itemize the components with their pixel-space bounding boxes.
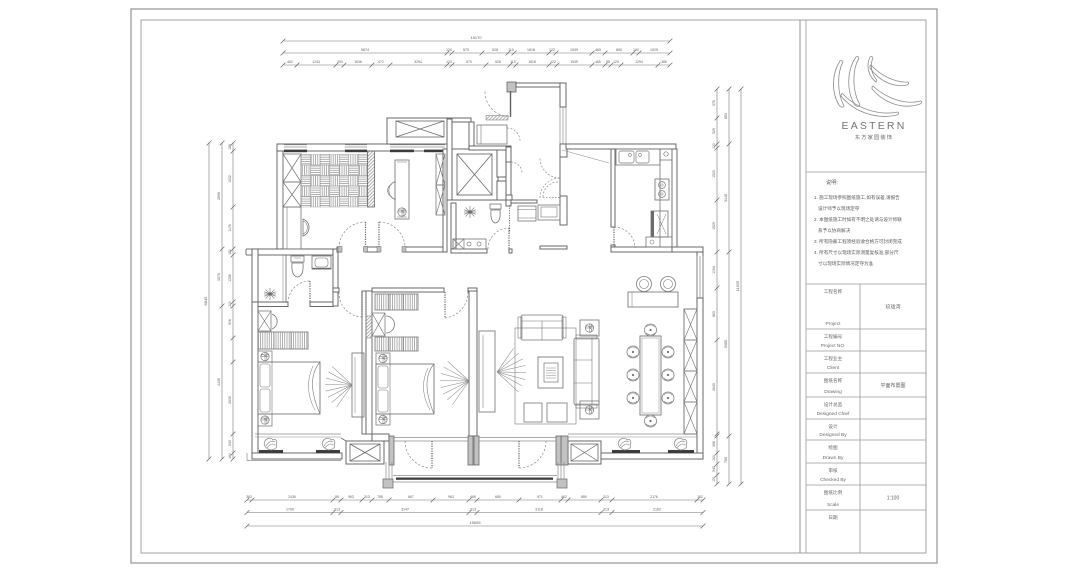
svg-text:1064: 1064 (712, 266, 716, 274)
svg-text:1925: 1925 (650, 48, 658, 52)
svg-text:8845: 8845 (203, 296, 208, 306)
svg-text:15170: 15170 (470, 35, 482, 40)
svg-text:1. 施工现场参照图纸施工,如有误差,请报告: 1. 施工现场参照图纸施工,如有误差,请报告 (814, 194, 900, 201)
svg-text:工程编号: 工程编号 (824, 333, 843, 340)
svg-text:1576: 1576 (217, 273, 221, 281)
svg-text:工程业主: 工程业主 (824, 355, 843, 362)
svg-text:东方家园装饰: 东方家园装饰 (855, 133, 893, 141)
svg-text:528: 528 (492, 48, 498, 52)
svg-text:审核: 审核 (828, 467, 838, 474)
svg-text:543: 543 (228, 440, 232, 446)
svg-text:667: 667 (408, 495, 414, 499)
svg-text:图纸名称: 图纸名称 (824, 377, 843, 384)
svg-text:576: 576 (712, 100, 716, 106)
svg-text:绘图: 绘图 (828, 444, 838, 451)
svg-text:图纸比例: 图纸比例 (824, 489, 843, 496)
svg-text:963: 963 (448, 495, 454, 499)
svg-text:2636: 2636 (228, 396, 232, 404)
svg-text:963: 963 (348, 495, 354, 499)
svg-text:100: 100 (633, 48, 639, 52)
svg-text:883: 883 (724, 113, 728, 119)
svg-text:3148: 3148 (724, 194, 728, 202)
svg-text:151: 151 (712, 476, 716, 482)
svg-text:平面布置图: 平面布置图 (880, 382, 905, 389)
svg-text:160: 160 (228, 453, 232, 459)
svg-text:385: 385 (661, 60, 667, 64)
svg-text:15695: 15695 (469, 520, 481, 525)
svg-text:Designed Chief: Designed Chief (817, 411, 850, 417)
svg-text:Drawn By: Drawn By (823, 455, 844, 461)
svg-text:3147: 3147 (401, 508, 409, 512)
svg-text:570: 570 (466, 60, 472, 64)
svg-text:462: 462 (287, 60, 293, 64)
svg-text:4. 所有尺寸以现场实际测量复核准,部分尺: 4. 所有尺寸以现场实际测量复核准,部分尺 (814, 249, 899, 256)
svg-text:5674: 5674 (361, 48, 369, 52)
svg-text:2176: 2176 (650, 495, 658, 499)
svg-text:Designed By: Designed By (819, 432, 847, 438)
svg-text:680: 680 (495, 495, 501, 499)
svg-text:120: 120 (446, 60, 452, 64)
svg-text:1243: 1243 (312, 60, 320, 64)
svg-text:313: 313 (470, 508, 476, 512)
svg-text:98: 98 (335, 495, 339, 499)
svg-text:760: 760 (724, 457, 728, 463)
svg-text:1532: 1532 (228, 175, 232, 183)
svg-text:设计: 设计 (828, 423, 838, 430)
svg-text:1529: 1529 (712, 222, 716, 230)
svg-text:472: 472 (378, 60, 384, 64)
svg-text:971: 971 (537, 495, 543, 499)
svg-text:1790: 1790 (286, 508, 294, 512)
svg-text:3. 所有隐蔽工程须经验收合格方可封闭完成: 3. 所有隐蔽工程须经验收合格方可封闭完成 (814, 238, 902, 245)
svg-text:1818: 1818 (527, 48, 535, 52)
svg-text:设计总监: 设计总监 (824, 401, 843, 408)
svg-text:465: 465 (595, 48, 601, 52)
svg-text:313: 313 (334, 508, 340, 512)
svg-text:160: 160 (712, 455, 716, 461)
svg-text:1294: 1294 (635, 60, 643, 64)
svg-text:EASTERN: EASTERN (842, 120, 907, 132)
svg-text:3294: 3294 (414, 60, 422, 64)
svg-text:11625: 11625 (735, 280, 740, 292)
svg-text:120: 120 (712, 143, 716, 149)
svg-text:1176: 1176 (228, 224, 232, 231)
svg-text:玖珑湾: 玖珑湾 (885, 304, 900, 311)
svg-text:110: 110 (508, 48, 514, 52)
svg-text:313: 313 (603, 508, 609, 512)
svg-text:系予以协商解决: 系予以协商解决 (818, 227, 851, 234)
svg-text:2. 本图纸施工时如有不明之处请与设计师联: 2. 本图纸施工时如有不明之处请与设计师联 (814, 216, 902, 223)
svg-text:2436: 2436 (288, 495, 296, 499)
svg-text:100: 100 (228, 301, 232, 307)
svg-text:Scale: Scale (827, 502, 839, 508)
svg-text:294: 294 (337, 60, 343, 64)
svg-text:Client: Client (827, 365, 840, 371)
svg-text:313: 313 (603, 495, 609, 499)
svg-text:120: 120 (613, 60, 619, 64)
svg-text:313: 313 (364, 495, 370, 499)
svg-text:462: 462 (561, 495, 567, 499)
svg-text:122: 122 (550, 60, 556, 64)
svg-text:2896: 2896 (217, 192, 221, 200)
svg-text:122: 122 (549, 48, 555, 52)
svg-text:2643: 2643 (712, 383, 716, 391)
svg-text:说明:: 说明: (826, 178, 838, 186)
svg-text:2162: 2162 (653, 508, 661, 512)
svg-text:529: 529 (712, 128, 716, 134)
svg-text:788: 788 (377, 495, 383, 499)
svg-text:1296: 1296 (228, 274, 232, 282)
svg-text:180: 180 (228, 249, 232, 255)
svg-text:1818: 1818 (528, 60, 536, 64)
svg-text:Checked By: Checked By (820, 477, 846, 483)
svg-text:1636: 1636 (354, 60, 362, 64)
svg-text:设计师予以现场定夺: 设计师予以现场定夺 (818, 205, 860, 212)
svg-text:Project NO.: Project NO. (821, 343, 846, 349)
svg-text:863: 863 (712, 311, 716, 317)
svg-text:528: 528 (495, 60, 501, 64)
svg-text:Project: Project (826, 321, 842, 327)
svg-text:4436: 4436 (217, 378, 221, 386)
svg-text:182: 182 (697, 495, 703, 499)
svg-text:寸以现场实际情况定夺为准.: 寸以现场实际情况定夺为准. (818, 260, 874, 267)
svg-text:1539: 1539 (570, 60, 578, 64)
svg-text:850: 850 (616, 48, 622, 52)
svg-text:5085: 5085 (724, 340, 728, 348)
svg-text:570: 570 (463, 48, 469, 52)
svg-text:543: 543 (712, 466, 716, 472)
svg-text:188: 188 (228, 144, 232, 150)
svg-text:906: 906 (228, 319, 232, 325)
svg-text:268: 268 (712, 441, 716, 447)
svg-text:469: 469 (470, 495, 476, 499)
svg-text:工程名称: 工程名称 (824, 288, 843, 295)
svg-text:1523: 1523 (712, 170, 716, 178)
svg-text:3118: 3118 (535, 508, 543, 512)
svg-text:1539: 1539 (570, 48, 578, 52)
svg-text:Drawing: Drawing (824, 389, 842, 395)
svg-text:1:100: 1:100 (887, 496, 900, 502)
svg-text:363: 363 (246, 495, 252, 499)
svg-text:880: 880 (581, 495, 587, 499)
svg-text:465: 465 (595, 60, 601, 64)
svg-text:120: 120 (446, 48, 452, 52)
svg-text:110: 110 (510, 60, 516, 64)
svg-text:98: 98 (606, 60, 610, 64)
